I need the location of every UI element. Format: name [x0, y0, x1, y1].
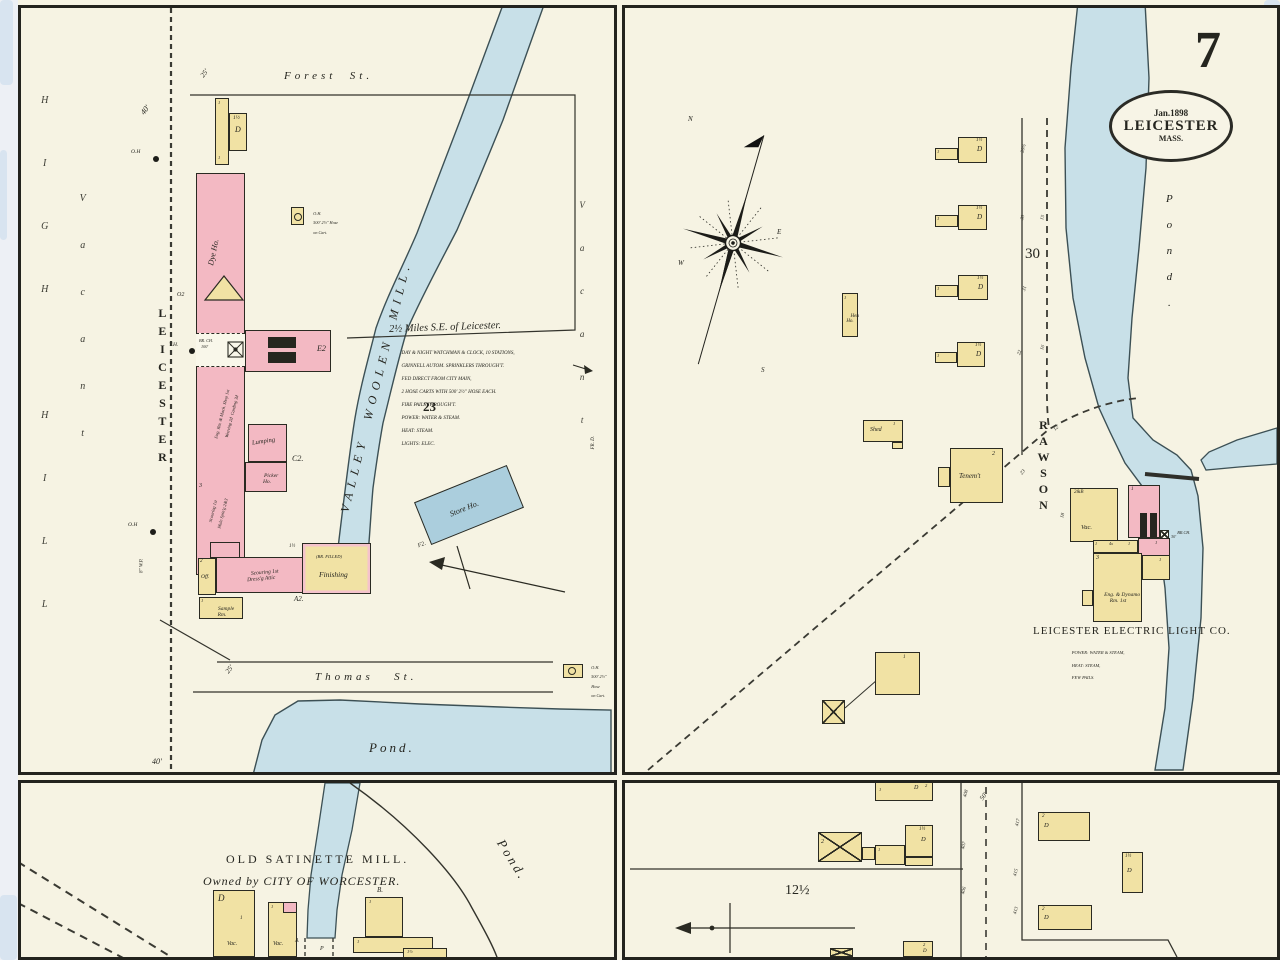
barn-icon: [818, 832, 862, 862]
dwelling-label: D: [977, 214, 982, 222]
dwelling-label: D: [1127, 867, 1132, 874]
engine-dynamo-label: Eng. & DynamoRm. 1st: [1095, 586, 1141, 611]
stories-label: 1½: [1125, 854, 1131, 860]
stream-branch: [1201, 428, 1277, 470]
scan-blue-patch: [0, 150, 7, 240]
scan-edge-left: [0, 0, 18, 960]
mill-notes: DAY & NIGHT WATCHMAN & CLOCK, 10 STATION…: [394, 344, 515, 455]
hydrant-dot: [153, 156, 159, 162]
hose-reel-icon: [568, 667, 576, 675]
house-number: 408: [963, 789, 970, 798]
stories-label: 2: [992, 451, 995, 458]
stories-label: 1½: [975, 343, 981, 349]
stories-label: 1½: [976, 138, 982, 144]
pond-label: Pond.: [369, 741, 415, 756]
hose-reel-icon: [294, 213, 302, 221]
race-letter: A: [295, 938, 299, 945]
hose-note: O.H. 500' 2½" Hose on Cart.: [307, 207, 338, 240]
stories-label: 2: [1042, 907, 1045, 913]
pink-section: [283, 902, 297, 913]
finishing-building: [302, 543, 371, 594]
office-label: Off.: [201, 574, 209, 580]
stories-label: 4x: [1109, 542, 1113, 547]
stories-label: 1½: [289, 544, 295, 550]
frontage-number: 16: [1040, 345, 1047, 351]
plant-ell: [1082, 590, 1093, 606]
frontage-number: 22: [1017, 350, 1024, 356]
frontage-number: 30: [1020, 215, 1027, 221]
section-a2-label: A2.: [294, 596, 304, 604]
plant-right-wing: [1142, 555, 1170, 580]
stories-label: 2: [821, 839, 824, 846]
publisher-stamp: Jan.1898 LEICESTER MASS.: [1109, 90, 1233, 162]
block-number: 30: [1025, 246, 1040, 263]
house-number: 417: [1015, 818, 1022, 827]
building-letter: D: [218, 893, 225, 903]
house-number: 407: [961, 841, 968, 850]
dwelling-label: D: [921, 836, 926, 843]
outbuilding: [875, 652, 920, 695]
section-e2-label: E2: [317, 345, 326, 354]
thomas-street-label: Thomas St.: [315, 671, 417, 683]
hydrant-dot: [150, 529, 156, 535]
compass-w: W: [678, 260, 684, 268]
stamp-state: MASS.: [1159, 135, 1183, 144]
building-letter: B.: [377, 887, 383, 895]
stories-label: 2: [1042, 814, 1045, 820]
sanborn-map-sheet: HIGH HILL Vacant LEICESTER Vacant FR. D.…: [0, 0, 1280, 960]
dressing-label: Scouring 1stDress'g Attic: [232, 562, 290, 591]
stories-label: 1: [937, 149, 939, 154]
stories-label: 1: [878, 847, 880, 852]
dwelling-label: D: [1044, 822, 1049, 829]
company-label: LEICESTER ELECTRIC LIGHT CO.: [1033, 625, 1231, 637]
frontage-number: 30½: [1021, 144, 1029, 154]
stories-label: 1½: [407, 949, 413, 954]
pond-water: [253, 700, 611, 772]
mill-connector: [210, 542, 240, 558]
water-pipe-label: 8" W.P.: [139, 559, 145, 573]
panel-block-12: 12½ 1 D 2 2 1 1½ D 2 D 2 D 1½ D 2 D 408 …: [622, 780, 1280, 960]
map-lines-over: [21, 8, 614, 772]
frontage-number: 31: [1022, 286, 1029, 292]
brick-filled-label: (BR. FILLED): [316, 554, 342, 559]
hydrant-oh-label: O.H: [131, 149, 140, 155]
dwelling-main: [958, 205, 987, 230]
width-40-top: 40': [139, 104, 152, 117]
river: [338, 8, 545, 554]
stories-label: 1: [1155, 540, 1157, 545]
road-width: 12': [1053, 425, 1061, 433]
stories-label: 2&B: [1074, 490, 1083, 496]
stories-label: 1: [937, 353, 939, 358]
dwelling-partial: [903, 941, 933, 957]
road-width: 50': [979, 791, 989, 802]
brick-chimney-note: BR.CH.30': [1171, 526, 1190, 545]
panel-valley-woolen-mill: HIGH HILL Vacant LEICESTER Vacant FR. D.…: [18, 5, 617, 775]
panel-rawson-electric: 7 Jan.1898 LEICESTER MASS.: [622, 5, 1280, 775]
house-number: 406: [961, 886, 968, 895]
stories-label: 3: [1096, 555, 1099, 562]
panel-old-satinette-mill: OLD SATINETTE MILL. Owned by CITY OF WOR…: [18, 780, 617, 960]
hydrant-dot: [189, 348, 195, 354]
stories-label: 1½: [977, 276, 983, 282]
stories-label: 1½: [233, 115, 240, 121]
stories-label: 1: [893, 421, 895, 426]
house-number: 413: [1013, 906, 1020, 915]
road-dashed: [21, 862, 176, 957]
shed-label: Shed: [870, 427, 882, 434]
o2-mark: O2: [177, 292, 184, 299]
hydrant-oh-label: O.H: [128, 522, 137, 528]
stories-label: 1: [201, 598, 203, 603]
scan-blue-patch: [0, 895, 17, 960]
map-lines-under: [625, 783, 1277, 957]
vacant-label-west: Vacant: [77, 193, 88, 475]
brick-chimney-height: 100': [201, 345, 208, 350]
fr-d-label: FR. D.: [591, 436, 597, 449]
barn-icon: [822, 700, 845, 724]
dwelling-label: D: [978, 284, 983, 292]
stories-label: 2: [925, 783, 927, 788]
stories-label: 1: [937, 216, 939, 221]
road-dashed: [21, 903, 127, 957]
dwelling-label: D: [977, 146, 982, 154]
house-number: 415: [1013, 868, 1020, 877]
finishing-label: Finishing: [319, 571, 348, 579]
stories-label: 2: [200, 559, 203, 565]
rawson-road-dashed: [648, 398, 1140, 770]
leicester-street-label: LEICESTER: [155, 306, 168, 468]
forest-street-label: Forest St.: [284, 70, 373, 82]
road-dashed: [1047, 118, 1049, 428]
stories-label: 1½: [919, 827, 925, 833]
plant-row: [1093, 540, 1138, 553]
store-house: Store Ho.: [414, 465, 524, 545]
stack-block: [1140, 513, 1147, 537]
stack-block: [1150, 513, 1157, 537]
width-40-bottom: 40': [152, 758, 162, 767]
stories-label: 1: [879, 787, 881, 792]
stories-label: 1: [903, 655, 906, 661]
lot-25-bottom: 25': [225, 664, 236, 676]
frontage-number: 23: [1020, 469, 1027, 476]
dwelling-label: D: [976, 351, 981, 359]
dwelling-label: D: [235, 126, 241, 135]
lot-line-forest: [190, 95, 575, 338]
dwelling-label: D: [1044, 914, 1049, 921]
map-lines-under: [21, 8, 614, 772]
stories-label: 1: [1159, 557, 1161, 562]
stories-label: 1: [271, 904, 273, 909]
direction-arrow-icon: [675, 903, 855, 953]
scan-blue-patch: [0, 0, 13, 85]
frontage-number: 18: [1060, 513, 1067, 519]
compass-e: E: [777, 229, 781, 237]
shed-ell: [892, 442, 903, 449]
barn-connector-line: [845, 680, 877, 708]
stories-label: 1: [1095, 542, 1097, 547]
tenement-ell: [938, 467, 950, 487]
stories-label: 1: [844, 295, 846, 300]
stories-label: 1: [937, 286, 939, 291]
hose-note: O.H. 500' 2½" Hose on Cart.: [585, 661, 607, 703]
compass-s: S: [761, 367, 765, 375]
stories-label: 1½: [976, 206, 982, 212]
vacant-label-east: Vacant: [577, 200, 587, 458]
track-arrow-icon: [429, 546, 565, 592]
stories-label: 1: [218, 100, 220, 105]
headline-mill: OLD SATINETTE MILL.: [226, 853, 409, 866]
floors-3-label: 3: [199, 483, 202, 490]
stories-label: 1: [369, 899, 371, 904]
dwelling-porch: [905, 857, 933, 866]
vacant-label: Vac.: [227, 941, 237, 948]
company-notes: POWER: WATER & STEAM, HEAT: STEAM, FEW P…: [1065, 644, 1125, 688]
th-label: T.H.: [169, 342, 178, 348]
plant-vacant-building: [1070, 488, 1118, 542]
high-hill-label: HIGH HILL: [39, 95, 50, 662]
stamp-date: Jan.1898: [1154, 108, 1188, 118]
connector: [862, 847, 875, 860]
stamp-city: LEICESTER: [1124, 118, 1219, 135]
stories-label: 1: [240, 916, 243, 922]
rawson-street-label: RAWSON: [1036, 418, 1049, 514]
road-and-lot-line: [1022, 783, 1177, 957]
penstock-letter: P: [320, 946, 324, 953]
headline-owner: Owned by CITY OF WORCESTER.: [203, 875, 400, 888]
stories-label: 2: [923, 942, 925, 947]
dwelling-main: [958, 275, 988, 300]
boiler-block: [268, 352, 296, 363]
dwelling-main: [958, 137, 987, 163]
picker-label: PickerHo.: [253, 467, 281, 492]
page-number: 7: [1195, 22, 1221, 80]
block-number: 12½: [785, 883, 810, 899]
frontage-number: 15: [1040, 215, 1047, 221]
lot-25-top: 25': [200, 68, 211, 80]
brick-chimney-label: BR. CH.: [199, 339, 213, 344]
barn-icon: [830, 948, 853, 957]
section-f2-label: F2.: [417, 541, 427, 550]
store-house-label: Store Ho.: [449, 500, 481, 520]
pond-label: Pond.: [1163, 193, 1175, 323]
vacant-label: Vac.: [1081, 524, 1092, 531]
stories-label: 1: [357, 939, 359, 944]
tenement-label: Tenem't: [959, 473, 980, 481]
boiler-block: [268, 337, 296, 348]
stories-label: 1: [1131, 487, 1134, 493]
stories-label: 1: [1128, 542, 1130, 547]
sample-room-label: SampleRm.: [207, 600, 237, 625]
hen-house-label: HenHo.: [843, 308, 857, 330]
vacant-label: Vac.: [273, 941, 283, 948]
stories-label: 1: [218, 155, 220, 160]
dwelling-label: D: [923, 949, 927, 955]
dwelling-label: D: [914, 785, 918, 792]
shed: [863, 420, 903, 442]
compass-n: N: [688, 116, 693, 124]
mill-title: 2½ Miles S.E. of Leicester.: [389, 320, 501, 336]
section-c2-label: C2.: [292, 455, 303, 464]
pond-label: Pond.: [494, 837, 531, 883]
block-number: 23: [423, 400, 436, 415]
dam-line: [1145, 474, 1199, 479]
